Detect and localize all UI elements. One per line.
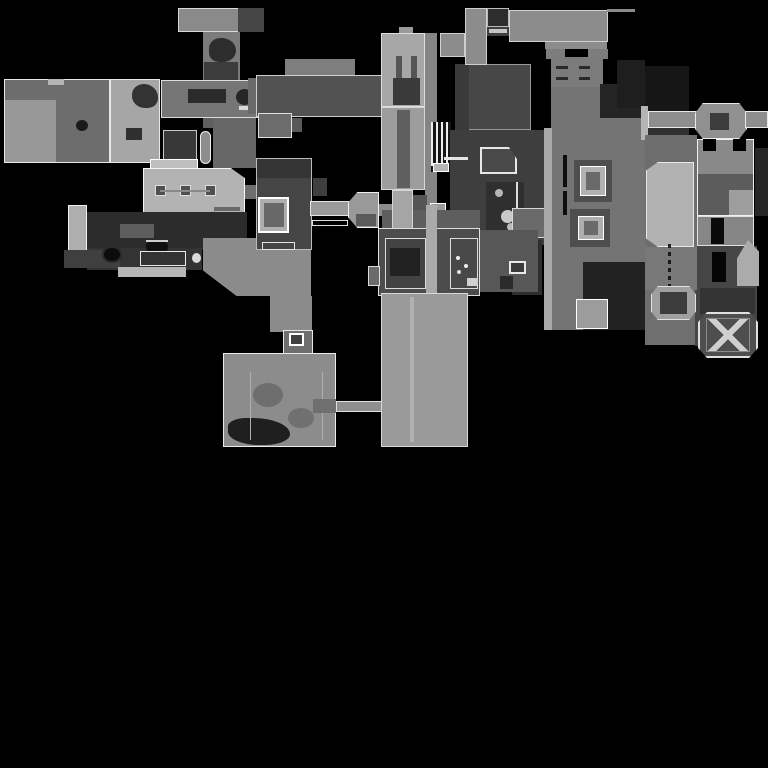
- keep-south-bldg: [697, 216, 754, 246]
- west-roof-notch: [48, 79, 64, 85]
- sky-bridge-core: [710, 113, 729, 130]
- court-fill: [213, 118, 256, 168]
- gatehouse-skylight: [289, 333, 304, 346]
- market-stalls-shadow: [397, 110, 410, 188]
- north-t-stem-shadow: [204, 62, 238, 80]
- garden-well: [102, 246, 122, 263]
- chapel-flower-1: [495, 189, 503, 197]
- garden-path-south: [118, 267, 186, 277]
- cellar-west-stub: [368, 266, 380, 286]
- garden-room-outline: [140, 251, 186, 266]
- ne-roof-stem: [465, 8, 487, 65]
- keep-south-gap: [711, 218, 724, 244]
- villa-atrium-core: [264, 203, 284, 227]
- north-t-stem-trees: [209, 38, 236, 62]
- porch-passage-ledge: [312, 220, 348, 226]
- plaza-bench-2: [579, 66, 590, 69]
- chapel-ledge: [444, 157, 468, 160]
- ne-roof-step: [545, 42, 607, 49]
- hall-east-link: [245, 185, 256, 199]
- west-roof-object: [126, 128, 142, 140]
- square-bridge-block: [313, 399, 336, 413]
- ne-grove: [617, 60, 645, 108]
- north-t-bar: [178, 8, 240, 32]
- ne-roof-main: [509, 10, 608, 42]
- east-gallery-south: [645, 247, 697, 290]
- cellar-dot-2: [464, 264, 468, 268]
- west-roof-light-wing: [5, 100, 56, 162]
- hall-south-dash: [214, 207, 240, 211]
- ne-lattice-tower: [487, 8, 509, 27]
- square-stain-1: [253, 383, 283, 407]
- square-stain-2: [288, 408, 314, 428]
- vineyard-bridge: [336, 401, 383, 412]
- west-roof-tree: [132, 84, 158, 108]
- porch-passage: [310, 201, 350, 216]
- keep-notch-east: [733, 139, 746, 151]
- screen: { "map": { "background": "#000000", "can…: [0, 0, 768, 768]
- market-south: [392, 190, 413, 232]
- scaffold-crates: [433, 163, 449, 172]
- garden-maze-west-bit: [248, 78, 256, 114]
- square-seam-west: [250, 372, 251, 440]
- level-overview-map: [0, 0, 768, 768]
- villa-south-outline: [262, 242, 295, 250]
- court-yard-step: [150, 159, 198, 169]
- porch-block: [313, 178, 327, 196]
- fountain-south-core: [584, 221, 598, 235]
- plaza-bench-3: [556, 77, 568, 80]
- garden-white-urn: [192, 253, 201, 263]
- ne-dark-hall: [645, 66, 689, 114]
- plaza-west-walk: [544, 128, 552, 330]
- maze-south-building: [258, 113, 292, 138]
- sky-bridge-west: [648, 111, 698, 128]
- maze-south-annex: [292, 118, 302, 132]
- keep-notch-west: [703, 139, 716, 151]
- ne-roof-ridge: [607, 9, 635, 12]
- map-canvas: [0, 0, 768, 768]
- market-east-lane: [425, 33, 437, 205]
- hall-rail: [160, 190, 210, 192]
- keep-east-shadow: [755, 148, 768, 216]
- south-neck: [270, 296, 312, 332]
- cellar-dot-3: [457, 270, 461, 274]
- bastion-mid: [700, 288, 755, 314]
- north-t-bar-trees: [238, 8, 264, 32]
- plaza-south-patio: [576, 299, 608, 329]
- keep-inner-room: [729, 190, 753, 215]
- vineyard: [381, 293, 468, 447]
- garden-maze-top-stub: [285, 59, 355, 75]
- fountain-north-core: [586, 172, 600, 190]
- market-post-1: [396, 56, 402, 80]
- west-roof-vent: [76, 120, 88, 131]
- plaza-rail-2: [563, 191, 567, 215]
- plaza-bench-4: [579, 77, 590, 80]
- east-stair-hall: [646, 162, 694, 247]
- garden-maze: [256, 75, 385, 117]
- roof-link-stub: [440, 33, 465, 57]
- east-dash-line: [668, 243, 671, 288]
- market-post-2: [411, 56, 417, 80]
- storehouse-west: [455, 64, 469, 130]
- bastion-x-floor: [706, 318, 750, 352]
- chapel-room: [480, 147, 517, 174]
- market-north-cellar: [393, 78, 420, 105]
- sky-bridge-east: [745, 111, 768, 128]
- plaza-rail-1: [563, 155, 567, 187]
- garden-path-patch: [120, 224, 154, 238]
- north-corridor-counter: [188, 89, 226, 103]
- court-capsule: [200, 131, 211, 164]
- vineyard-center-path: [410, 297, 414, 442]
- cellar-dot-1: [456, 256, 460, 260]
- cellar-aisle: [426, 205, 437, 298]
- plaza-bench-1: [556, 66, 568, 69]
- bastion-pit: [712, 252, 726, 282]
- porch-hex-shadow: [356, 214, 376, 226]
- annex-pit: [500, 276, 513, 289]
- cellar-crate: [467, 278, 478, 286]
- villa-dark-north: [257, 159, 311, 178]
- east-ring-core: [660, 292, 687, 314]
- annex-box: [509, 261, 526, 274]
- cellar-barrels: [390, 248, 420, 276]
- ne-tower-sill: [489, 29, 507, 33]
